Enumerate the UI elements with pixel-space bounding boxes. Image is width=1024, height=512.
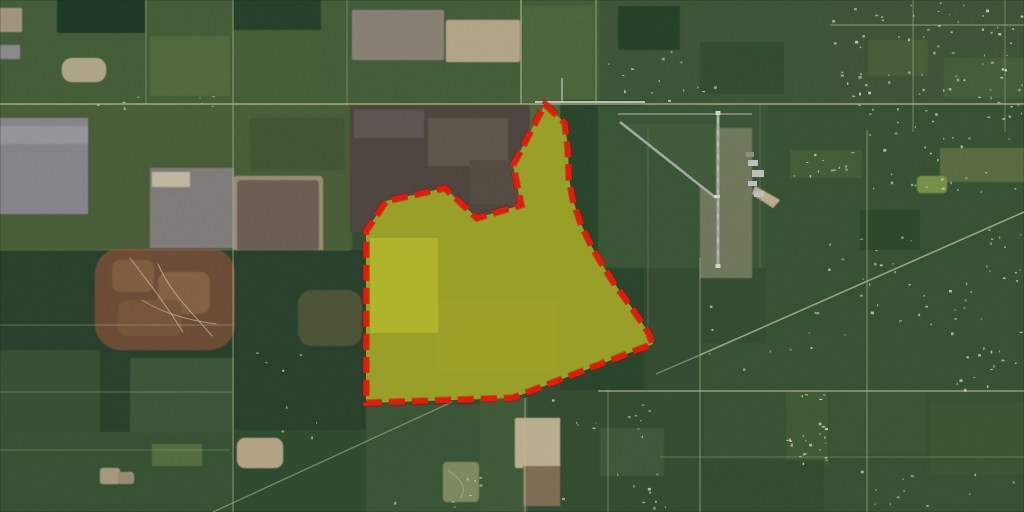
satellite-map-canvas	[0, 0, 1024, 512]
satellite-map-view[interactable]	[0, 0, 1024, 512]
